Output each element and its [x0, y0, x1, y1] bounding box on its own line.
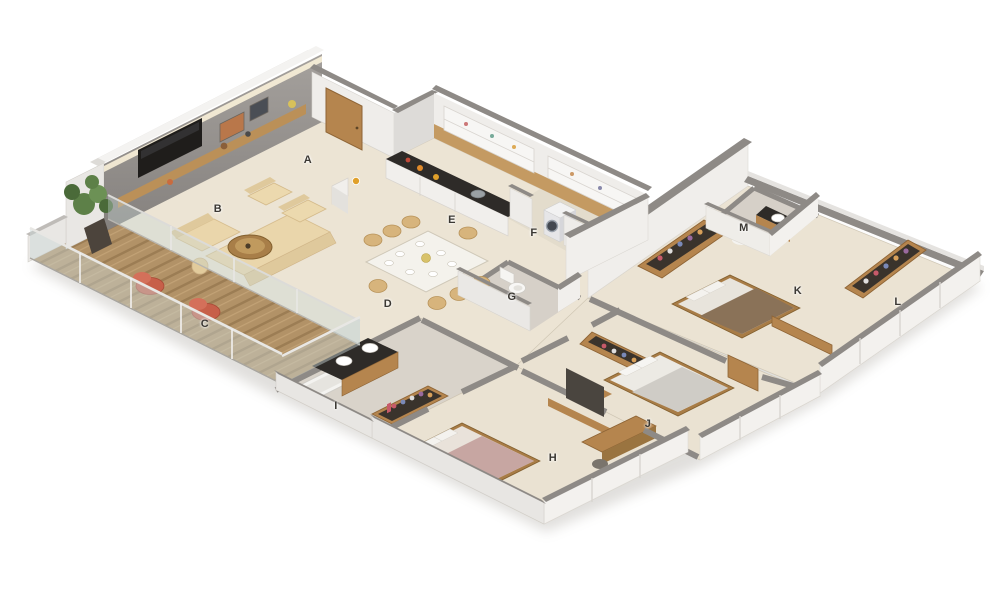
room-label-a: A — [304, 154, 312, 166]
food-item — [433, 174, 439, 180]
centerpiece — [422, 254, 431, 263]
room-label-b: B — [214, 203, 222, 215]
room-label-k: K — [794, 285, 802, 297]
room-label-i: I — [334, 400, 338, 412]
room-label-f: F — [530, 227, 537, 239]
shelf-plant — [288, 100, 296, 108]
kitchen-sink — [471, 190, 485, 198]
decor-vase — [221, 143, 228, 150]
room-label-c: C — [201, 318, 209, 330]
room-label-d: D — [384, 298, 392, 310]
decor-bowl — [167, 179, 173, 185]
isometric-scene — [0, 0, 1000, 600]
decor-vase — [245, 131, 251, 137]
room-label-h: H — [549, 452, 557, 464]
sink — [336, 356, 352, 365]
food-item — [406, 158, 411, 163]
sink — [362, 343, 378, 352]
room-label-e: E — [448, 214, 456, 226]
food-item — [417, 165, 423, 171]
food-item — [352, 177, 359, 184]
room-label-l: L — [894, 296, 901, 308]
floor-plan-image: A B C D E F G H I J K L M — [0, 0, 1000, 600]
room-label-j: J — [645, 418, 652, 430]
room-label-m: M — [739, 222, 749, 234]
room-label-g: G — [507, 291, 516, 303]
